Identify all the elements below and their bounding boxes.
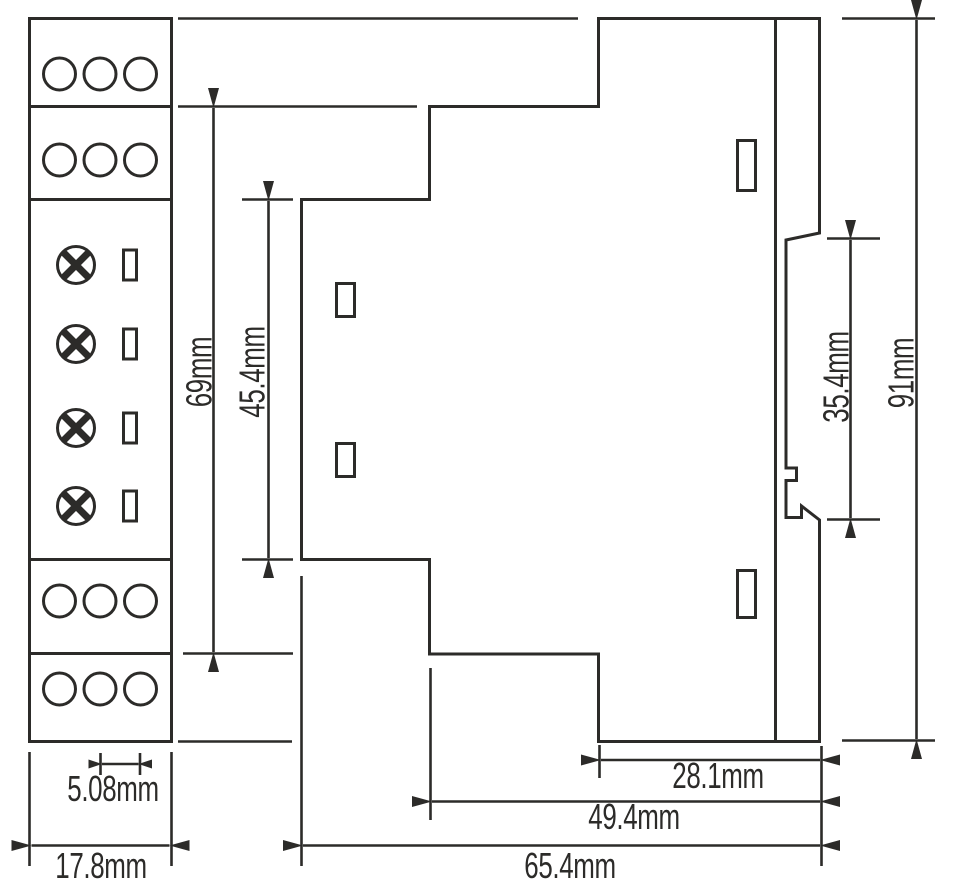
- terminal-row-top-1: [44, 58, 157, 90]
- drawing-svg: 69mm 45.4mm 35.4mm 91mm 28.1mm 49.4mm 65…: [0, 0, 956, 888]
- screw-cross-icon: [64, 332, 89, 357]
- side-view: [302, 19, 820, 742]
- dimensions: 69mm 45.4mm 35.4mm 91mm 28.1mm 49.4mm 65…: [32, 20, 922, 886]
- dim-module-width: 17.8mm: [32, 846, 170, 887]
- dimension-label: 35.4mm: [816, 331, 856, 422]
- dim-terminal-pitch: 5.08mm: [67, 764, 158, 809]
- vent-slot: [738, 571, 756, 618]
- dimension-label: 45.4mm: [232, 326, 272, 417]
- front-view-body: [30, 19, 172, 742]
- vent-slot: [337, 444, 355, 477]
- dim-rear-depth: 28.1mm: [601, 756, 820, 796]
- dimension-label: 5.08mm: [67, 769, 158, 809]
- front-view: [30, 19, 172, 742]
- side-view-profile: [302, 19, 820, 742]
- extension-lines: [30, 19, 936, 867]
- terminal-hole-icon: [125, 673, 157, 705]
- dimension-label: 69mm: [179, 337, 219, 408]
- dimension-label: 65.4mm: [524, 846, 615, 886]
- dim-lower-depth: 49.4mm: [432, 797, 820, 837]
- terminal-hole-icon: [125, 585, 157, 617]
- vent-slot: [337, 284, 355, 317]
- terminal-hole-icon: [44, 585, 76, 617]
- dimension-label: 28.1mm: [672, 756, 763, 796]
- terminal-hole-icon: [84, 585, 116, 617]
- indicator-window: [124, 329, 137, 359]
- dim-front-recess-height: 45.4mm: [232, 201, 272, 558]
- screw-cross-icon: [64, 416, 89, 441]
- terminal-hole-icon: [84, 673, 116, 705]
- terminal-hole-icon: [125, 58, 157, 90]
- dial-row-2: [58, 326, 137, 363]
- indicator-window: [124, 491, 137, 521]
- terminal-row-bottom-2: [44, 673, 157, 705]
- vent-slot: [738, 141, 756, 191]
- dimension-label: 17.8mm: [55, 846, 146, 886]
- dim-front-body-height: 69mm: [179, 108, 219, 652]
- dial-row-3: [58, 410, 137, 447]
- indicator-window: [124, 250, 137, 280]
- screw-cross-icon: [64, 253, 89, 278]
- terminal-hole-icon: [44, 144, 76, 176]
- terminal-row-top-2: [44, 144, 157, 176]
- terminal-row-bottom-1: [44, 585, 157, 617]
- indicator-window: [124, 413, 137, 443]
- terminal-hole-icon: [84, 144, 116, 176]
- terminal-hole-icon: [44, 673, 76, 705]
- dimension-drawing: 69mm 45.4mm 35.4mm 91mm 28.1mm 49.4mm 65…: [0, 0, 956, 888]
- dial-row-1: [58, 247, 137, 284]
- dim-rail-recess-height: 35.4mm: [816, 240, 856, 518]
- dim-overall-depth: 65.4mm: [303, 846, 820, 887]
- screw-cross-icon: [64, 494, 89, 519]
- terminal-hole-icon: [125, 144, 157, 176]
- dimension-label: 49.4mm: [588, 797, 679, 837]
- dimension-label: 91mm: [881, 338, 921, 409]
- terminal-hole-icon: [44, 58, 76, 90]
- dial-row-4: [58, 488, 137, 525]
- dim-overall-height: 91mm: [881, 20, 921, 739]
- terminal-hole-icon: [84, 58, 116, 90]
